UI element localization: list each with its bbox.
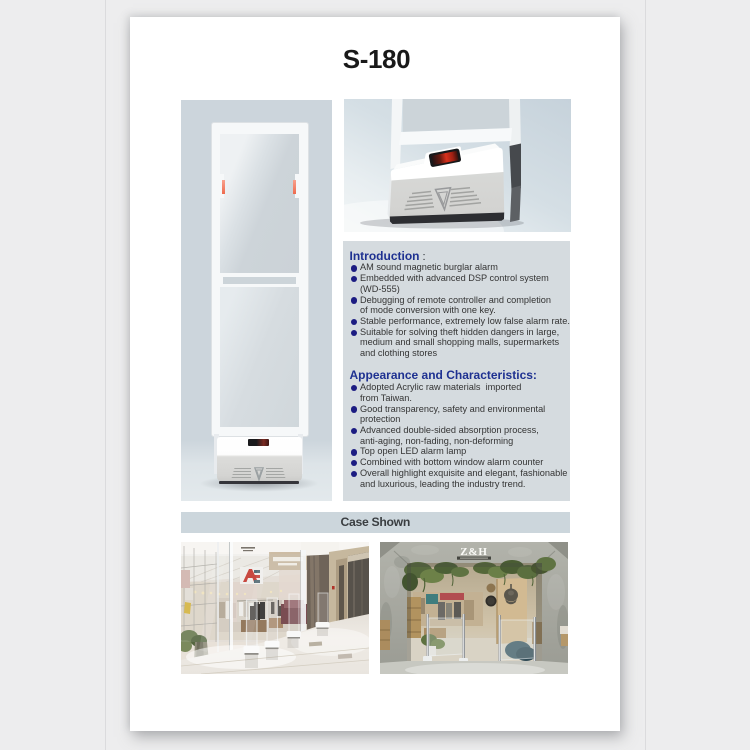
svg-text:Z&H: Z&H <box>460 546 487 558</box>
